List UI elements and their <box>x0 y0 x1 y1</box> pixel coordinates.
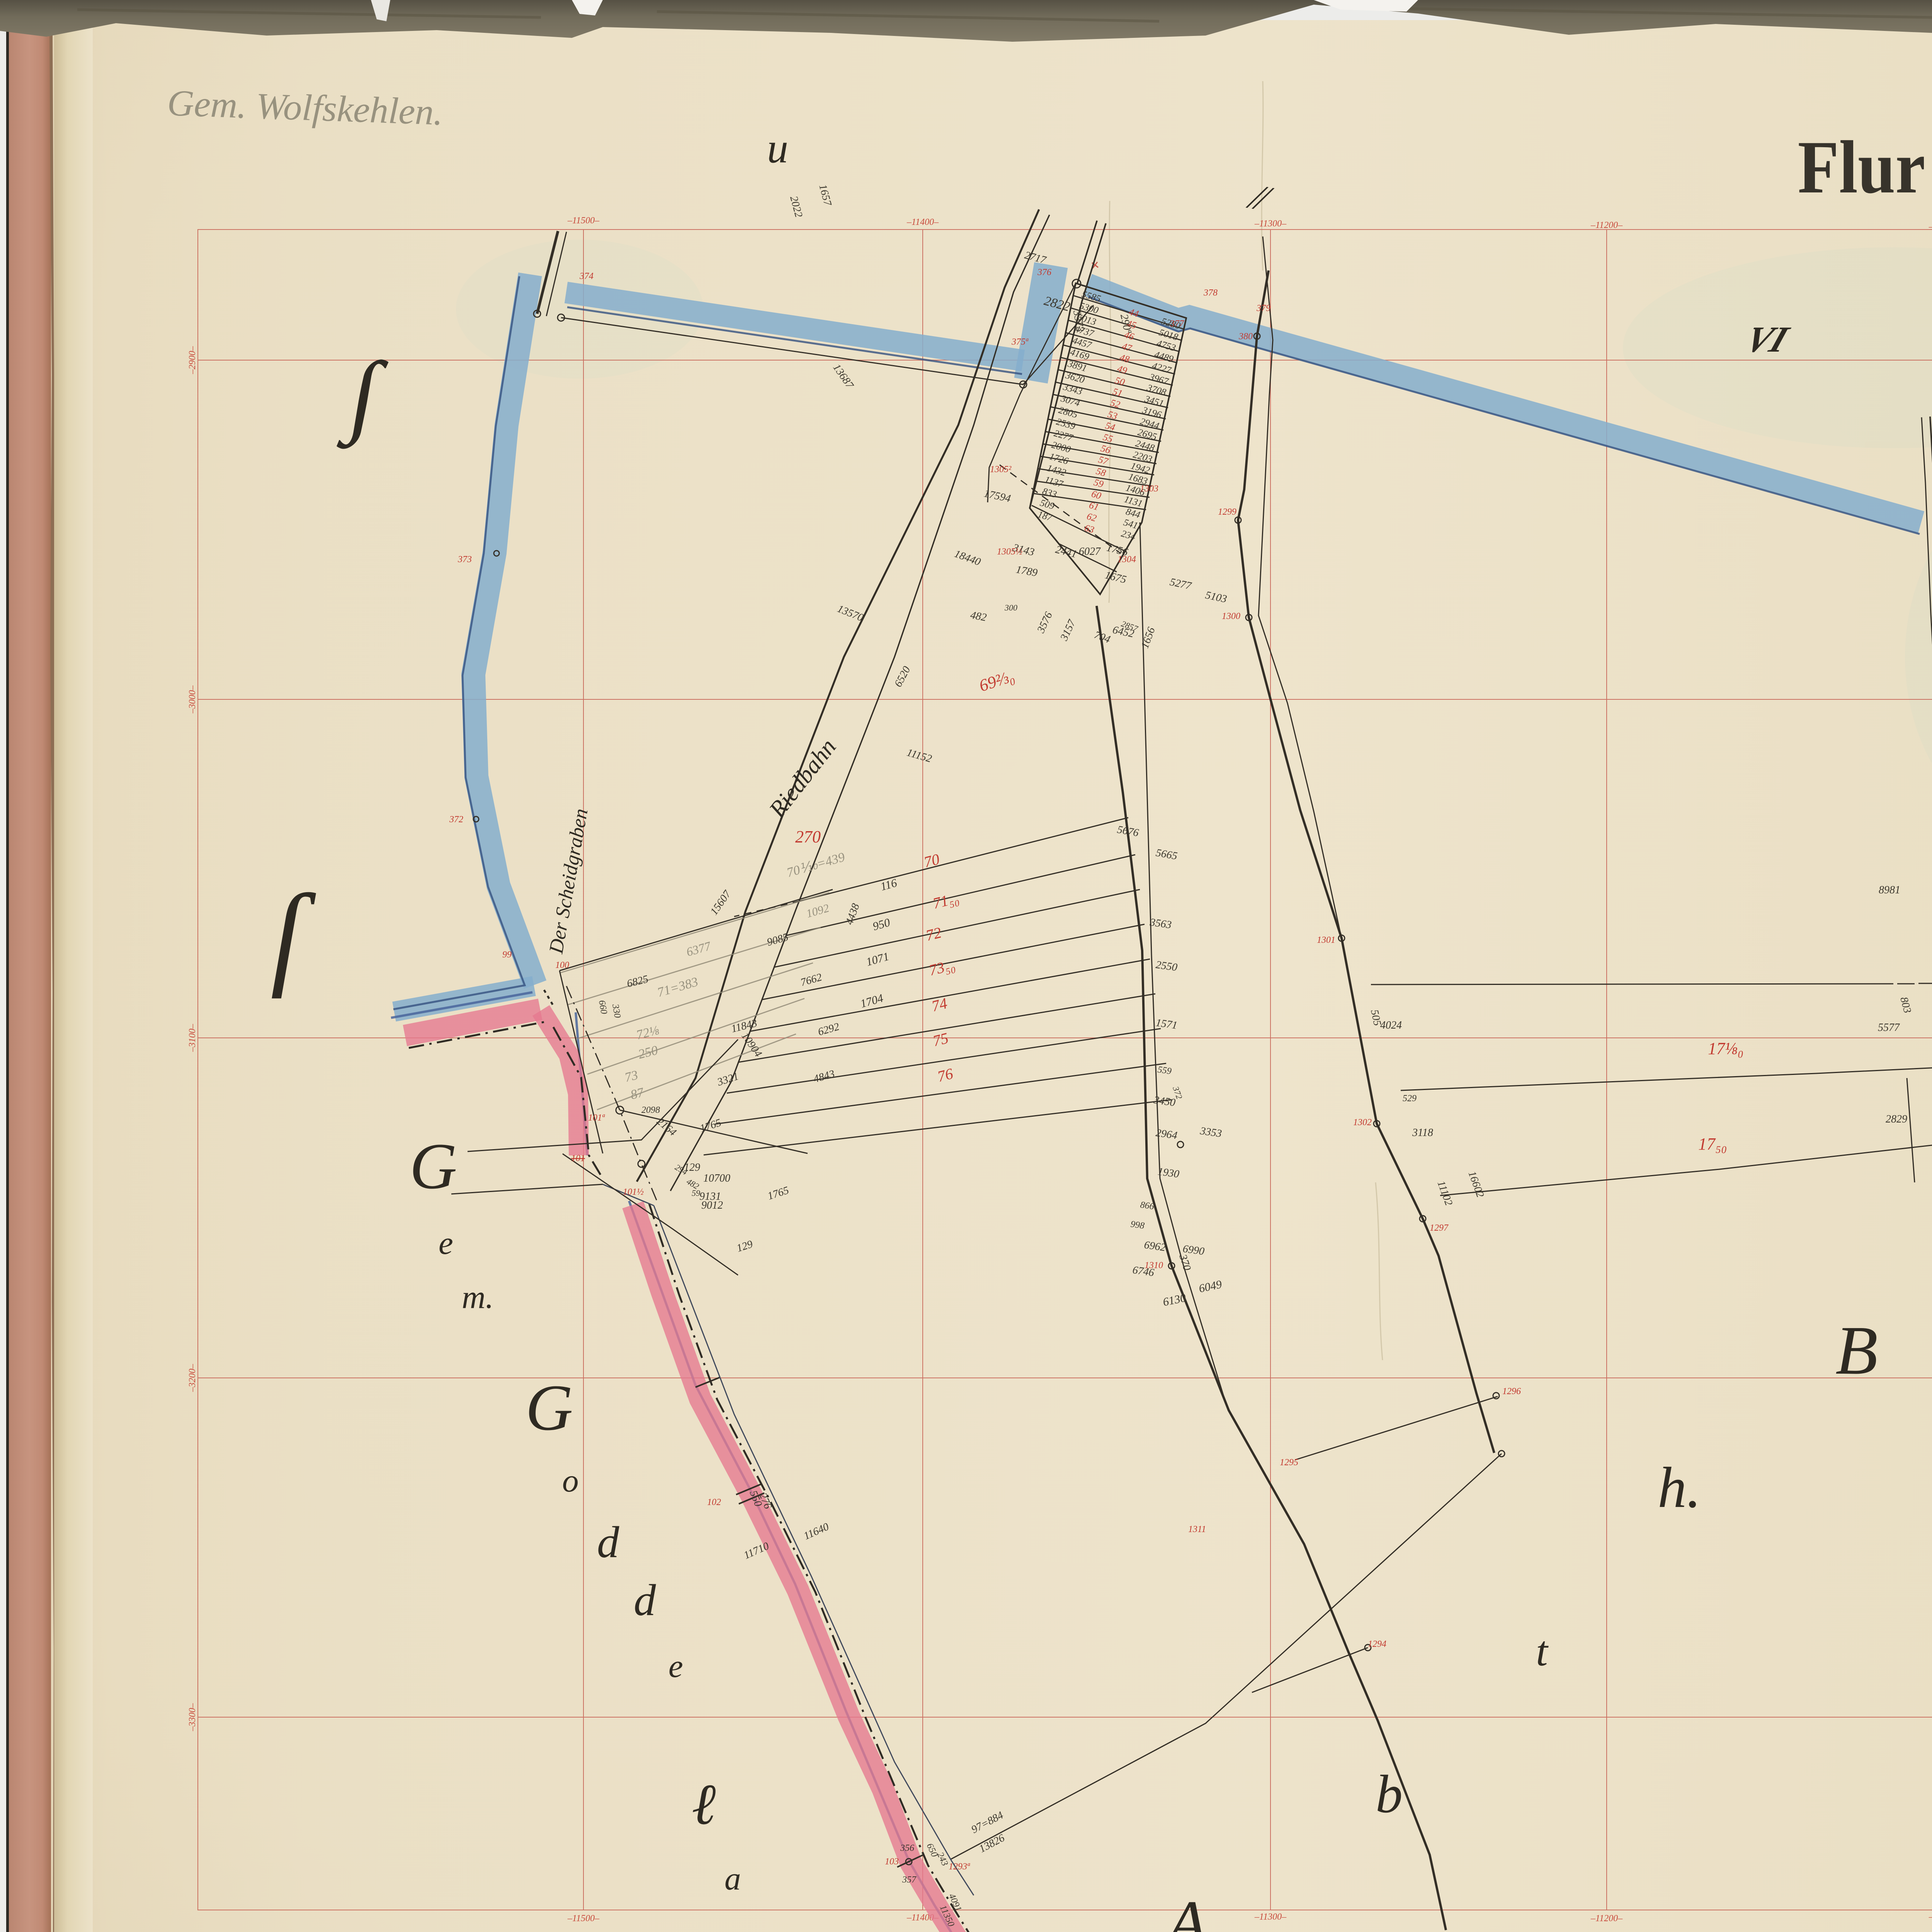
svg-text:–11500–: –11500– <box>567 1913 600 1923</box>
svg-text:A: A <box>1163 1887 1207 1932</box>
svg-text:–3300–: –3300– <box>187 1703 197 1731</box>
svg-text:–11500–: –11500– <box>567 216 600 226</box>
svg-text:1310: 1310 <box>1145 1260 1163 1270</box>
svg-text:2829: 2829 <box>1886 1113 1907 1125</box>
svg-text:1293ª: 1293ª <box>949 1862 970 1872</box>
svg-text:1302: 1302 <box>1353 1117 1372 1128</box>
svg-text:–11400–: –11400– <box>906 217 939 227</box>
svg-text:374: 374 <box>579 271 594 281</box>
svg-text:G: G <box>526 1371 573 1444</box>
svg-text:373: 373 <box>457 554 472 565</box>
svg-text:998: 998 <box>1130 1219 1145 1231</box>
svg-text:m.: m. <box>462 1279 494 1315</box>
svg-text:356: 356 <box>900 1843 914 1853</box>
svg-text:–3000–: –3000– <box>187 685 197 714</box>
svg-text:376: 376 <box>1037 267 1051 277</box>
svg-text:–2900–: –2900– <box>187 346 197 374</box>
svg-text:–11300–: –11300– <box>1254 219 1287 229</box>
svg-text:100: 100 <box>555 960 569 970</box>
svg-text:d: d <box>597 1518 619 1567</box>
svg-text:1297: 1297 <box>1430 1223 1449 1233</box>
svg-text:1305²: 1305² <box>990 464 1012 474</box>
svg-text:10700: 10700 <box>703 1172 730 1184</box>
svg-text:377: 377 <box>1170 319 1184 329</box>
svg-text:u: u <box>769 1930 786 1932</box>
svg-text:101: 101 <box>571 1153 585 1163</box>
svg-text:102: 102 <box>707 1497 721 1507</box>
svg-text:300: 300 <box>1004 603 1017 612</box>
svg-text:e: e <box>439 1225 453 1261</box>
svg-text:59: 59 <box>692 1188 700 1198</box>
svg-text:4024: 4024 <box>1380 1019 1402 1031</box>
svg-text:5577: 5577 <box>1878 1022 1900 1034</box>
svg-text:o: o <box>562 1463 579 1499</box>
svg-text:h.: h. <box>1658 1456 1701 1520</box>
svg-text:a: a <box>724 1861 741 1897</box>
svg-text:–11300–: –11300– <box>1254 1912 1287 1922</box>
svg-text:B: B <box>1835 1312 1878 1389</box>
svg-text:–11100–: –11100– <box>1929 1912 1932 1922</box>
svg-text:–11200–: –11200– <box>1590 220 1623 230</box>
svg-text:17⅛₀: 17⅛₀ <box>1708 1039 1743 1058</box>
svg-text:1294: 1294 <box>1368 1639 1386 1649</box>
svg-text:372: 372 <box>449 815 463 825</box>
svg-text:–11100–: –11100– <box>1929 222 1932 232</box>
svg-text:529: 529 <box>1403 1094 1417 1104</box>
svg-text:8981: 8981 <box>1879 884 1900 896</box>
svg-text:103: 103 <box>885 1857 899 1867</box>
svg-text:101ª: 101ª <box>588 1113 605 1123</box>
svg-text:e: e <box>668 1648 683 1684</box>
svg-text:1305½: 1305½ <box>997 547 1022 557</box>
svg-text:1301: 1301 <box>1317 935 1335 945</box>
svg-text:9012: 9012 <box>701 1199 723 1211</box>
svg-text:t: t <box>1536 1628 1549 1675</box>
svg-text:6027: 6027 <box>1079 546 1101 558</box>
svg-text:559: 559 <box>1157 1065 1172 1077</box>
svg-text:17₅₀: 17₅₀ <box>1698 1134 1727 1153</box>
svg-text:–3200–: –3200– <box>187 1364 197 1392</box>
svg-text:379: 379 <box>1256 303 1270 313</box>
svg-text:866: 866 <box>1139 1200 1155 1212</box>
svg-text:ℓ: ℓ <box>692 1772 716 1837</box>
svg-text:378: 378 <box>1203 288 1218 298</box>
svg-text:–3100–: –3100– <box>187 1024 197 1052</box>
svg-text:Flur VIII Abth. A: Flur VIII Abth. A <box>1798 126 1932 209</box>
svg-text:357: 357 <box>902 1875 917 1885</box>
svg-text:101½: 101½ <box>623 1187 644 1197</box>
svg-text:b: b <box>1376 1764 1403 1824</box>
svg-text:1299: 1299 <box>1218 507 1236 517</box>
svg-text:2098: 2098 <box>641 1105 660 1115</box>
svg-text:1311: 1311 <box>1188 1524 1206 1534</box>
svg-text:129: 129 <box>684 1162 700 1173</box>
svg-text:G: G <box>410 1130 457 1202</box>
svg-text:270: 270 <box>795 827 821 846</box>
svg-text:375ª: 375ª <box>1011 337 1029 347</box>
svg-text:d: d <box>634 1576 656 1625</box>
svg-text:1300: 1300 <box>1222 611 1240 621</box>
svg-text:1296: 1296 <box>1502 1386 1521 1396</box>
svg-text:380: 380 <box>1238 332 1253 342</box>
svg-text:1304: 1304 <box>1117 554 1136 565</box>
svg-text:–11200–: –11200– <box>1590 1913 1623 1923</box>
svg-text:1295: 1295 <box>1280 1458 1298 1468</box>
svg-text:99: 99 <box>502 950 512 960</box>
svg-text:u: u <box>767 124 788 172</box>
svg-text:1303: 1303 <box>1140 484 1158 494</box>
svg-text:3118: 3118 <box>1412 1127 1433 1139</box>
